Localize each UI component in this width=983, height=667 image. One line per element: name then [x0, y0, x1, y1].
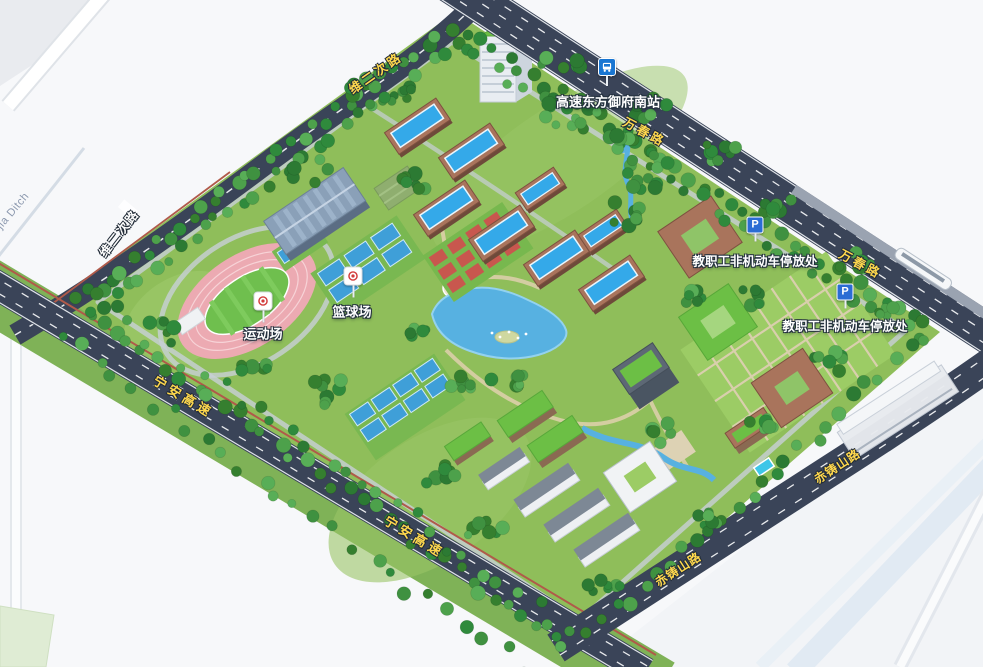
parking-marker-1[interactable]: P — [747, 217, 764, 242]
bus-stop-icon[interactable] — [598, 58, 616, 76]
parking-label-1[interactable]: 教职工非机动车停放处 — [692, 251, 817, 270]
parking-marker-2[interactable]: P — [837, 284, 854, 309]
bus-stop-pole — [606, 76, 608, 86]
basketball-court-label[interactable]: 篮球场 — [332, 302, 371, 321]
basketball-marker-icon[interactable] — [344, 267, 363, 286]
parking-sign-pole — [844, 301, 846, 309]
bus-glyph — [601, 61, 613, 73]
sports-field-label[interactable]: 运动场 — [243, 324, 282, 343]
parking-sign-icon[interactable]: P — [837, 284, 854, 301]
basketball-glyph — [347, 270, 360, 283]
runner-glyph — [257, 295, 270, 308]
basketball-marker-pole — [352, 286, 354, 298]
bus-station-marker[interactable] — [598, 58, 616, 86]
parking-label-2[interactable]: 教职工非机动车停放处 — [782, 316, 907, 335]
bus-station-label[interactable]: 高速东方御府南站 — [556, 92, 660, 111]
sports-marker-pole — [262, 311, 264, 323]
sports-marker-icon[interactable] — [254, 292, 273, 311]
parking-sign-pole — [754, 234, 756, 242]
campus-map: 维二次路 维二次路 万春路 万春路 宁安高速 宁安高速 赤铸山路 赤铸山路 ji… — [0, 0, 983, 667]
basketball-marker[interactable] — [344, 267, 363, 298]
sports-field-marker[interactable] — [254, 292, 273, 323]
parking-sign-icon[interactable]: P — [747, 217, 764, 234]
